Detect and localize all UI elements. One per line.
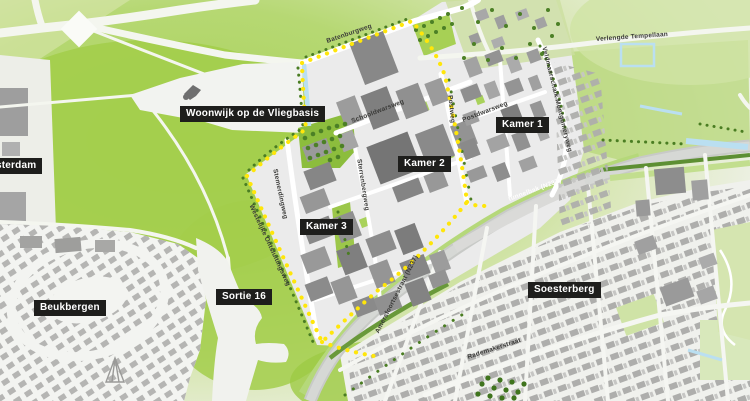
map-canvas: sterdam Woonwijk op de Vliegbasis Kamer …	[0, 0, 750, 401]
place-label-kamer-1: Kamer 1	[496, 117, 549, 133]
place-label-sortie-16: Sortie 16	[216, 289, 272, 305]
place-label-woonwijk: Woonwijk op de Vliegbasis	[180, 106, 325, 122]
place-label-beukbergen: Beukbergen	[34, 300, 106, 316]
place-label-amsterdam-partial: sterdam	[0, 158, 42, 174]
place-label-soesterberg: Soesterberg	[528, 282, 601, 298]
map-graphic	[0, 0, 750, 401]
place-label-kamer-2: Kamer 2	[398, 156, 451, 172]
place-label-kamer-3: Kamer 3	[300, 219, 353, 235]
